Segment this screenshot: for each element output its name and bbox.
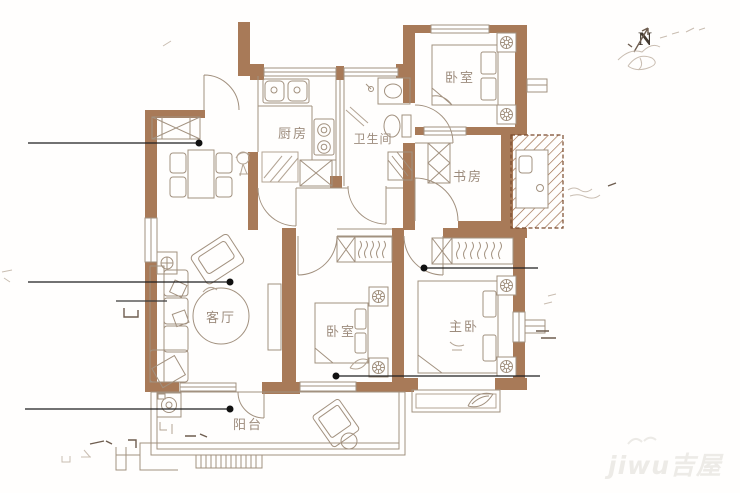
room-label-kitchen: 厨房 — [278, 126, 308, 141]
watermark: jiwu吉屋 — [604, 438, 724, 480]
wardrobe-master-icon — [432, 238, 513, 264]
nightstand-icon — [497, 33, 516, 52]
room-label-bedroom-second: 卧室 — [326, 324, 356, 339]
kitchen-sink-icon — [263, 79, 309, 103]
stove-icon — [314, 119, 334, 155]
armchair-icon — [190, 233, 245, 285]
study-door — [415, 178, 458, 221]
window-study — [424, 127, 466, 135]
plant-icon — [236, 152, 250, 176]
wardrobe-bedroom2-icon — [337, 237, 392, 262]
shoe-cabinet-icon — [152, 117, 200, 139]
window-bathroom — [344, 68, 398, 76]
washing-machine-icon — [157, 393, 181, 434]
bathroom-door — [348, 186, 386, 224]
lounge-chair-icon — [312, 398, 360, 447]
nightstand-icon — [497, 276, 516, 295]
window-living-balcony — [180, 383, 236, 391]
dish-rack-icon — [262, 152, 298, 182]
elevator-shaft — [511, 135, 563, 228]
window-master-right — [513, 312, 545, 342]
bedroom-top-door — [415, 105, 453, 143]
room-label-balcony: 阳台 — [233, 417, 263, 432]
plant-box-icon — [157, 252, 177, 274]
window-bedroom2-balcony — [300, 382, 356, 391]
room-label-bathroom: 卫生间 — [353, 132, 392, 146]
bay-window-master — [412, 390, 500, 412]
windows — [145, 25, 547, 412]
bedroom2-door — [298, 236, 337, 275]
fridge-icon — [300, 160, 332, 186]
window-stub-bedroom-top — [527, 79, 547, 92]
balcony-door — [238, 392, 264, 418]
window-kitchen — [264, 68, 336, 76]
watermark-text: jiwu吉屋 — [604, 451, 724, 480]
window-left-wall — [145, 218, 157, 262]
entry-door — [204, 75, 239, 110]
room-label-study: 书房 — [453, 169, 483, 184]
room-label-bedroom-top: 卧室 — [445, 70, 475, 85]
floor-plan-canvas: N 厨房 卫生间 卧室 书房 客厅 卧室 主卧 阳台 jiwu吉屋 — [0, 0, 740, 493]
study-cabinet-icon — [428, 143, 450, 183]
nightstand-icon — [369, 287, 388, 306]
leaf-decoration — [468, 393, 493, 407]
watermark-bird-icon — [628, 438, 656, 444]
leaf-decoration — [350, 359, 368, 369]
dining-table-icon — [170, 150, 232, 198]
window-bedroom-top — [431, 25, 489, 33]
kitchen-door — [258, 188, 296, 226]
nightstand-icon — [497, 357, 516, 376]
door-swings — [204, 75, 458, 418]
north-compass: N — [618, 28, 705, 70]
floor-plan-drawing: N 厨房 卫生间 卧室 书房 客厅 卧室 主卧 阳台 jiwu吉屋 — [0, 0, 740, 493]
tv-cabinet-icon — [268, 284, 281, 350]
nightstand-icon — [369, 358, 388, 377]
room-label-living: 客厅 — [206, 310, 236, 325]
nightstand-icon — [497, 105, 516, 124]
room-label-master: 主卧 — [449, 319, 479, 334]
bathroom-shelf-icon — [346, 107, 368, 126]
